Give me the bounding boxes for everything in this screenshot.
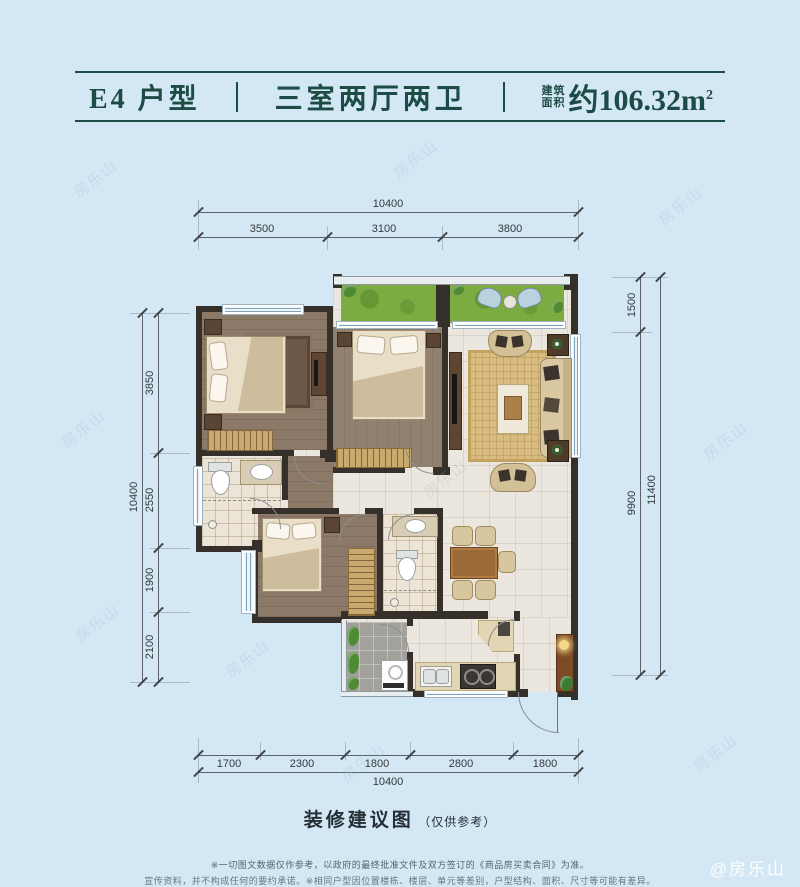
washing-machine-door — [388, 665, 403, 680]
nightstand — [324, 517, 340, 533]
dim-top-seg: 3800 — [498, 223, 522, 235]
dim-bottom-seg: 1700 — [217, 758, 241, 770]
sliding-door — [452, 321, 566, 329]
wall — [433, 467, 450, 475]
wardrobe — [207, 430, 273, 451]
bay-window — [241, 550, 256, 614]
floor-drain — [208, 520, 217, 529]
balcony-railing — [334, 276, 570, 285]
nightstand — [204, 414, 222, 430]
kitchen-sink-bowl — [423, 669, 436, 684]
dim-right-total: 11400 — [646, 475, 658, 505]
dim-line-top-segments — [198, 237, 578, 238]
dim-line-bottom-total — [198, 772, 578, 773]
nightstand — [204, 319, 222, 335]
entry-door-leaf — [557, 692, 558, 732]
dim-line-left-total — [142, 313, 143, 682]
pillow — [356, 335, 385, 355]
dim-left-seg: 3850 — [144, 371, 156, 395]
dining-chair — [475, 580, 496, 600]
dining-chair — [452, 526, 473, 546]
service-balcony-railing — [341, 691, 413, 697]
sofa-cushion — [543, 397, 560, 413]
dim-line-right-segments — [640, 277, 641, 675]
cabinet-lamp — [559, 640, 569, 650]
pillow — [389, 335, 418, 355]
window — [193, 466, 203, 526]
disclaimer-line2: 宣传资料，并不构成任何的要约承诺。※相同户型因位置楼栋、楼层、单元等差别，户型结… — [0, 874, 800, 887]
shower-divider — [384, 590, 436, 591]
wall — [282, 456, 288, 500]
wall — [252, 617, 342, 623]
caption: 装修建议图 （仅供参考） — [0, 805, 800, 832]
floorplan-page: E4 户型 三室两厅两卫 建筑 面积 约106.32m2 — [0, 0, 800, 887]
nightstand — [337, 332, 352, 347]
kitchen-sink-bowl — [436, 669, 449, 684]
dim-left-seg: 1900 — [144, 568, 156, 592]
dim-line-right-total — [660, 277, 661, 675]
plant-pot — [552, 445, 562, 455]
sink — [250, 464, 273, 480]
dim-bottom-seg: 2800 — [449, 758, 473, 770]
tv — [452, 374, 457, 424]
washing-machine-panel — [383, 683, 404, 688]
dining-chair — [498, 551, 516, 573]
wall — [327, 306, 333, 456]
dim-right-seg: 9900 — [626, 491, 638, 515]
caption-note: （仅供参考） — [418, 815, 496, 829]
wall — [407, 618, 413, 626]
armchair — [490, 463, 536, 492]
caption-title: 装修建议图 — [304, 810, 414, 831]
dim-left-seg: 2100 — [144, 635, 156, 659]
armchair-cushion — [511, 335, 523, 347]
dining-chair — [452, 580, 473, 600]
pillow — [209, 373, 229, 403]
dim-bottom-seg: 1800 — [533, 758, 557, 770]
window — [222, 304, 304, 315]
dining-chair — [475, 526, 496, 546]
dim-bottom-seg: 1800 — [365, 758, 389, 770]
dim-bottom-total: 10400 — [373, 776, 404, 788]
dim-left-seg: 2550 — [144, 488, 156, 512]
nightstand — [426, 333, 441, 348]
sliding-door — [336, 321, 438, 329]
dim-line-left-segments — [158, 313, 159, 682]
balcony-table — [503, 295, 517, 309]
window — [424, 690, 508, 698]
dim-right-seg: 1500 — [626, 293, 638, 317]
armchair-cushion — [495, 335, 508, 348]
dim-top-total: 10400 — [373, 198, 404, 210]
plant-pot — [552, 339, 562, 349]
burner — [464, 669, 480, 685]
dim-top-seg: 3500 — [250, 223, 274, 235]
coffee-table-top — [504, 396, 522, 420]
dim-line-top-total — [198, 212, 578, 213]
pillow — [291, 522, 317, 540]
dining-table — [450, 547, 498, 579]
dim-left-total: 10400 — [128, 482, 140, 513]
dim-top-seg: 3100 — [372, 223, 396, 235]
entry-door-arc — [518, 692, 559, 733]
tv — [314, 360, 318, 386]
armchair-cushion — [514, 469, 526, 481]
armchair-cushion — [498, 469, 511, 482]
burner — [479, 669, 495, 685]
disclaimer-line1: ※一切图文数据仅作参考，以政府的最终批准文件及双方签订的《商品房买卖合同》为准。 — [0, 858, 800, 871]
dim-line-bottom-segments — [198, 755, 578, 756]
floor-drain — [390, 598, 399, 607]
dim-bottom-seg: 2300 — [290, 758, 314, 770]
shower-divider — [203, 500, 281, 501]
wardrobe — [348, 548, 375, 616]
wall — [442, 321, 448, 473]
sofa-cushion — [543, 365, 560, 381]
watermark-credit: @房乐山 — [710, 855, 786, 880]
wall — [377, 508, 383, 618]
floor-plan — [0, 0, 800, 887]
wardrobe — [336, 448, 412, 468]
